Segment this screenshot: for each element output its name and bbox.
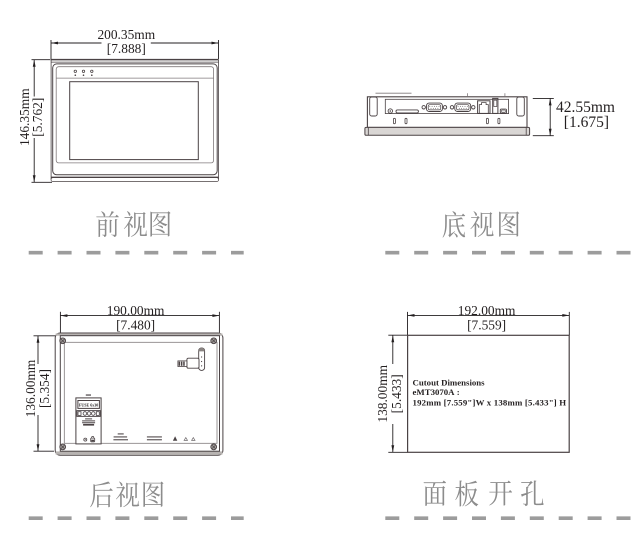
svg-text:[7.559]: [7.559] <box>467 317 506 332</box>
svg-text:138.00mm: 138.00mm <box>375 364 390 422</box>
svg-text:190.00mm: 190.00mm <box>107 303 165 318</box>
svg-text:136.00mm: 136.00mm <box>23 359 38 417</box>
svg-text:FUSE 6x30: FUSE 6x30 <box>79 403 98 408</box>
svg-text:Cutout Dimensions: Cutout Dimensions <box>413 378 486 388</box>
svg-text:192mm [7.559"]W x 138mm [5.433: 192mm [7.559"]W x 138mm [5.433"] H <box>413 398 567 408</box>
svg-text:192.00mm: 192.00mm <box>458 303 516 318</box>
svg-text:[7.888]: [7.888] <box>107 41 146 56</box>
svg-text:[1.675]: [1.675] <box>564 114 609 131</box>
svg-text:200.35mm: 200.35mm <box>97 27 155 42</box>
svg-text:[7.480]: [7.480] <box>116 317 155 332</box>
svg-text:[5.433]: [5.433] <box>389 374 404 413</box>
svg-text:[5.762]: [5.762] <box>30 98 45 137</box>
svg-text:[5.354]: [5.354] <box>37 369 52 408</box>
svg-text:eMT3070A :: eMT3070A : <box>413 387 460 397</box>
